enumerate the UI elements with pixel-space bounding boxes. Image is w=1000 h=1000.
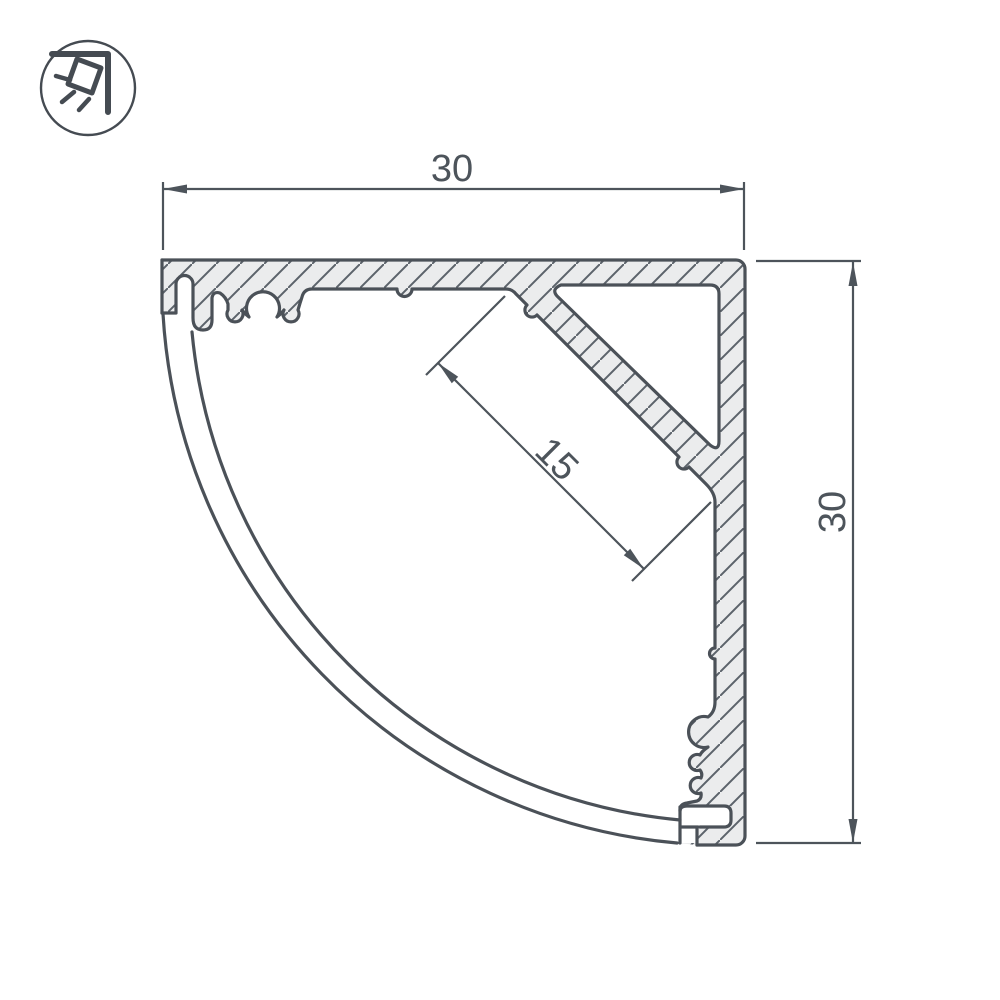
profile-drawing: 30 30 15 (0, 0, 1000, 1000)
icon-lamp-shade (68, 59, 101, 93)
technical-drawing-page: 30 30 15 (0, 0, 1000, 1000)
bottom-slot (679, 806, 731, 827)
dimension-top-value: 30 (431, 148, 473, 190)
dimension-right-value: 30 (812, 491, 854, 533)
